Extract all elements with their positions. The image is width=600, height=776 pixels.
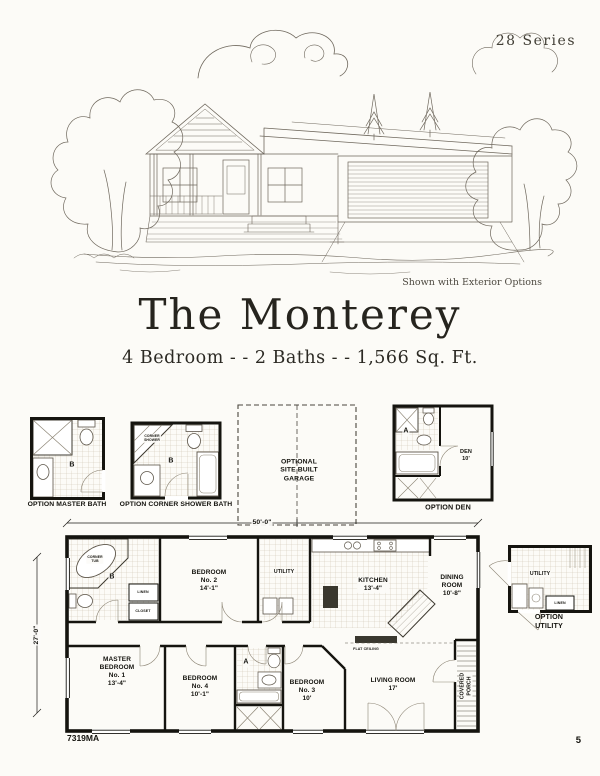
den-room-label: DEN 10' (460, 449, 472, 463)
room-label-kitchen: KITCHEN 13'-4" (357, 577, 389, 593)
option-den-caption: OPTION DEN (425, 503, 471, 512)
main-floor-plan (65, 535, 480, 734)
flat-ceiling-note: FLAT CEILING (352, 647, 380, 651)
room-label-bedroom-3: BEDROOM No. 3 10' (290, 679, 325, 703)
option-utility-caption: OPTION UTILITY (524, 612, 575, 630)
option-corner-shower-bath-caption: OPTION CORNER SHOWER BATH (120, 501, 233, 509)
option-utility-room-label: UTILITY (529, 571, 551, 578)
series-label: 28 Series (496, 33, 576, 49)
option-master-bath-caption: OPTION MASTER BATH (28, 501, 107, 509)
bath-letter-b: B (108, 574, 115, 583)
model-number: 7319MA (67, 733, 99, 743)
room-label-bedroom-4: BEDROOM No. 4 10'-1" (183, 675, 218, 699)
room-label-living: LIVING ROOM 17' (371, 677, 416, 693)
page-title: The Monterey (0, 290, 600, 339)
elevation-drawing (51, 30, 577, 274)
bath-letter-a: A (242, 659, 249, 668)
elevation-caption: Shown with Exterior Options (402, 277, 542, 288)
option-den-plan (394, 406, 494, 500)
line-art (0, 0, 600, 776)
bath-letter-option-master: B (68, 462, 75, 471)
garage-label: OPTIONAL SITE BUILT GARAGE (280, 458, 318, 483)
linen-label: LINEN (137, 590, 148, 594)
bath-letter-option-den: A (402, 428, 409, 437)
page-number: 5 (576, 735, 581, 746)
corner-shower-label: CORNER SHOWER (143, 434, 161, 443)
depth-dimension: 27'-0" (33, 624, 41, 645)
page-subtitle: 4 Bedroom - - 2 Baths - - 1,566 Sq. Ft. (0, 348, 600, 368)
option-master-bath-plan (32, 419, 104, 499)
room-label-porch: COVERED PORCH (460, 672, 473, 700)
catalog-page: 28 Series Shown with Exterior Options Th… (0, 0, 600, 776)
corner-tub-label: CORNER TUB (86, 555, 103, 564)
option-utility-linen-label: LINEN (554, 601, 565, 605)
closet-label: CLOSET (135, 609, 150, 613)
room-label-bedroom-2: BEDROOM No. 2 14'-1" (192, 569, 227, 593)
room-label-dining: DINING ROOM 10'-8" (440, 574, 463, 598)
bath-letter-option-corner: B (167, 458, 174, 467)
room-label-utility: UTILITY (273, 569, 295, 576)
room-label-master-bedroom: MASTER BEDROOM No. 1 13'-4" (100, 656, 135, 689)
width-dimension: 50'-0" (251, 519, 272, 527)
